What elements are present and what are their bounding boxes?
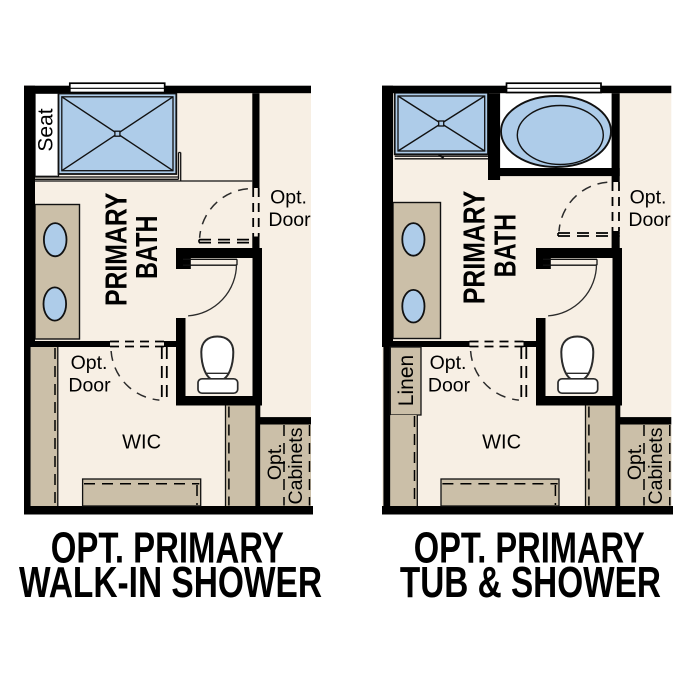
- svg-text:Cabinets: Cabinets: [285, 427, 307, 504]
- svg-text:Opt.: Opt.: [630, 187, 667, 209]
- svg-text:Door: Door: [68, 375, 111, 397]
- svg-text:Door: Door: [628, 209, 671, 231]
- svg-text:Cabinets: Cabinets: [645, 427, 667, 504]
- svg-text:WALK-IN SHOWER: WALK-IN SHOWER: [19, 558, 322, 607]
- svg-text:Opt.: Opt.: [71, 352, 108, 374]
- svg-text:Opt.: Opt.: [430, 352, 467, 374]
- svg-text:Opt.: Opt.: [624, 443, 646, 480]
- svg-text:Opt.: Opt.: [270, 187, 307, 209]
- svg-text:TUB & SHOWER: TUB & SHOWER: [400, 558, 661, 607]
- svg-text:Linen: Linen: [395, 355, 418, 406]
- svg-text:BATH: BATH: [487, 214, 522, 278]
- svg-text:Door: Door: [268, 209, 311, 231]
- svg-text:WIC: WIC: [122, 432, 161, 454]
- svg-text:Door: Door: [428, 375, 471, 397]
- svg-text:PRIMARY: PRIMARY: [456, 190, 491, 304]
- svg-text:Opt.: Opt.: [264, 443, 286, 480]
- svg-text:WIC: WIC: [482, 432, 521, 454]
- svg-text:BATH: BATH: [129, 216, 164, 279]
- svg-text:Seat: Seat: [35, 108, 58, 151]
